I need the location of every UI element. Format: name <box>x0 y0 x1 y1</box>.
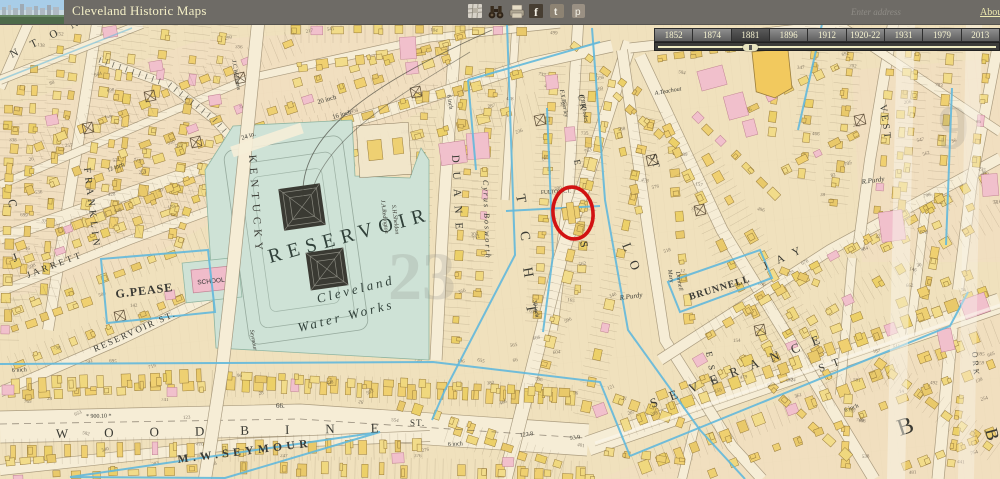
svg-text:289: 289 <box>680 153 688 158</box>
svg-text:ST.: ST. <box>410 418 425 428</box>
svg-text:499: 499 <box>550 31 558 37</box>
svg-text:698: 698 <box>107 88 116 94</box>
svg-text:66.: 66. <box>276 402 285 410</box>
svg-text:198: 198 <box>326 380 334 386</box>
svg-text:6 inch: 6 inch <box>12 367 27 374</box>
svg-text:188: 188 <box>858 419 866 425</box>
svg-text:629: 629 <box>105 115 113 120</box>
svg-text:96: 96 <box>237 374 243 379</box>
svg-text:604: 604 <box>553 350 561 356</box>
svg-text:142: 142 <box>130 304 138 309</box>
svg-text:741: 741 <box>161 398 169 403</box>
svg-text:765: 765 <box>24 400 32 405</box>
svg-text:376: 376 <box>414 454 422 459</box>
svg-text:6 inch: 6 inch <box>448 441 463 448</box>
svg-text:242: 242 <box>853 123 861 129</box>
svg-text:536: 536 <box>35 190 43 196</box>
svg-text:374: 374 <box>691 207 699 213</box>
svg-text:p: p <box>575 7 581 18</box>
svg-text:531: 531 <box>175 144 183 150</box>
svg-text:38: 38 <box>820 193 826 198</box>
svg-text:501: 501 <box>853 378 862 384</box>
svg-text:* 900.10 *: * 900.10 * <box>86 414 112 420</box>
svg-text:216: 216 <box>196 442 204 448</box>
svg-text:356: 356 <box>235 45 243 51</box>
svg-text:538: 538 <box>862 454 870 460</box>
svg-text:28: 28 <box>47 397 53 402</box>
svg-text:16: 16 <box>25 247 31 252</box>
svg-text:257: 257 <box>65 144 73 149</box>
svg-text:758: 758 <box>53 346 61 351</box>
svg-text:699: 699 <box>20 213 29 219</box>
svg-text:735: 735 <box>581 131 589 137</box>
svg-text:678: 678 <box>920 230 929 236</box>
svg-text:492: 492 <box>930 381 938 386</box>
svg-text:466: 466 <box>812 132 820 137</box>
svg-text:702: 702 <box>849 64 857 70</box>
svg-text:154: 154 <box>733 339 741 344</box>
svg-text:23: 23 <box>388 238 456 314</box>
svg-text:338: 338 <box>9 138 17 144</box>
svg-text:428: 428 <box>108 192 116 198</box>
svg-text:481: 481 <box>909 470 917 476</box>
svg-text:247: 247 <box>280 454 288 459</box>
svg-text:347: 347 <box>797 66 805 71</box>
svg-text:123: 123 <box>183 416 191 421</box>
